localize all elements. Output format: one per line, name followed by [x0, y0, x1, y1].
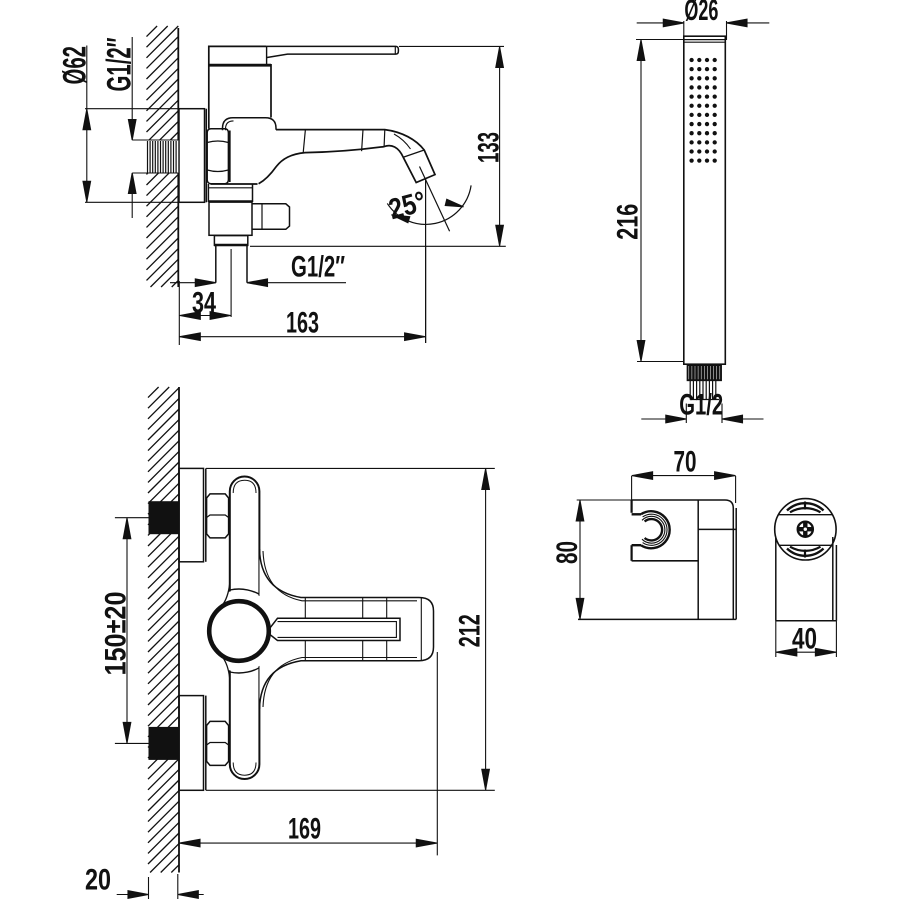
svg-text:169: 169 [288, 813, 321, 846]
svg-text:216: 216 [612, 204, 645, 240]
svg-text:G1/2″: G1/2″ [101, 37, 139, 91]
svg-text:133: 133 [473, 132, 506, 163]
svg-text:20: 20 [85, 864, 111, 897]
svg-text:34: 34 [192, 287, 216, 320]
svg-text:163: 163 [286, 307, 319, 340]
svg-text:Ø62: Ø62 [56, 46, 92, 85]
svg-text:80: 80 [551, 541, 584, 564]
svg-text:G1/2″: G1/2″ [291, 251, 345, 284]
svg-text:G1/2: G1/2 [679, 389, 723, 422]
svg-text:212: 212 [454, 614, 487, 647]
svg-text:Ø26: Ø26 [684, 0, 718, 27]
svg-text:40: 40 [792, 623, 817, 656]
svg-text:70: 70 [674, 446, 697, 479]
svg-text:150±20: 150±20 [100, 592, 133, 676]
